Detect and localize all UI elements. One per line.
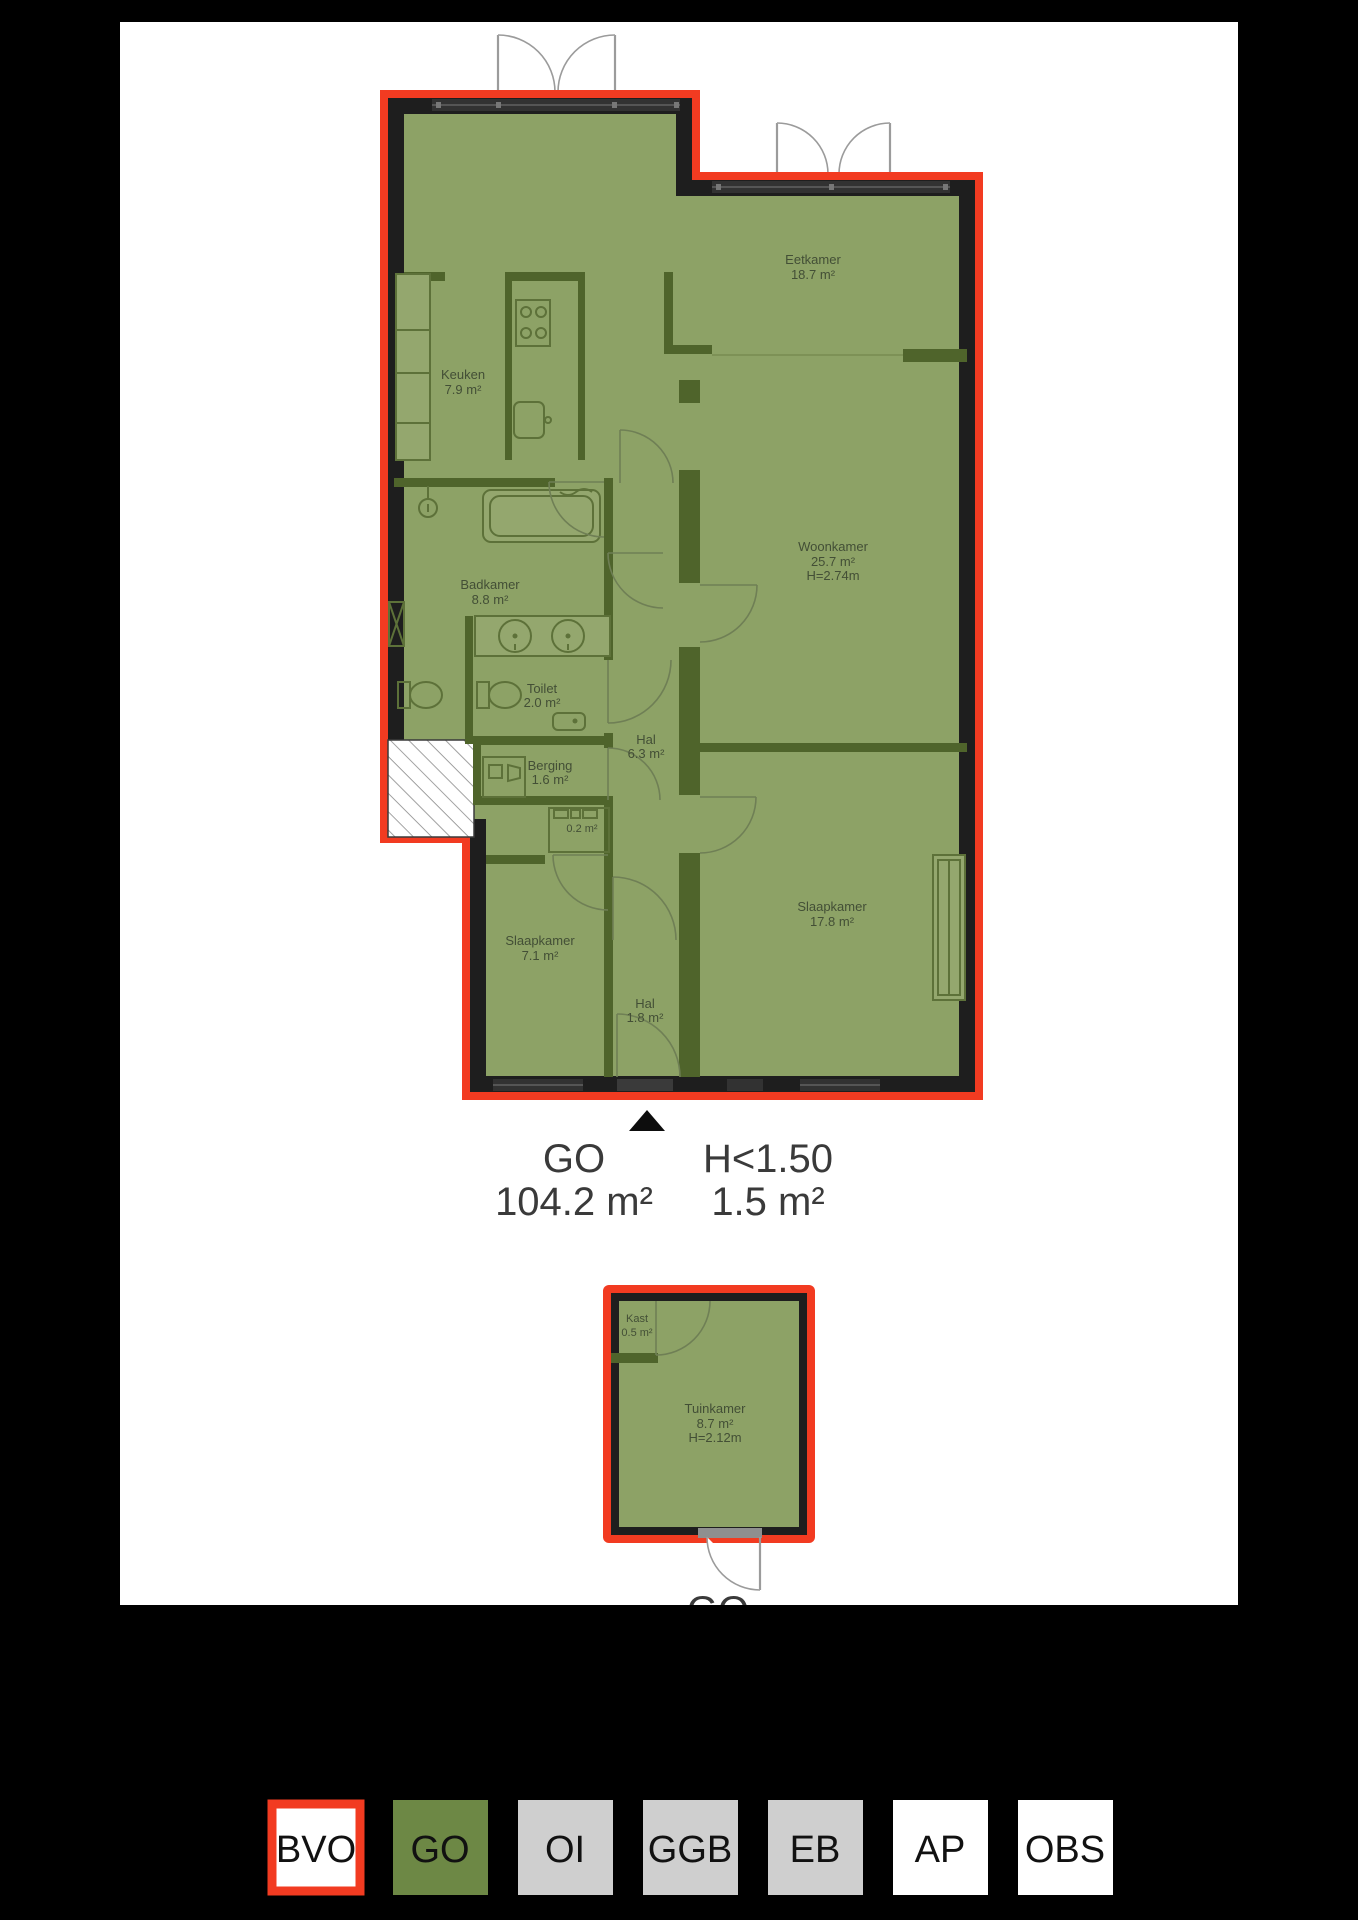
room-label-woonkamer: Woonkamer <box>798 539 869 554</box>
room-area-berging: 1.6 m² <box>532 772 570 787</box>
h150-summary-value: 1.5 m² <box>711 1180 824 1224</box>
room-area-slaapkamer-2: 17.8 m² <box>810 914 855 929</box>
room-area-tuinkamer: 8.7 m² <box>697 1416 735 1431</box>
room-label-toilet: Toilet <box>527 681 558 696</box>
room-label-keuken: Keuken <box>441 367 485 382</box>
room-area-eetkamer: 18.7 m² <box>791 267 836 282</box>
bathtub-icon <box>483 489 600 542</box>
legend-label-go: GO <box>410 1829 469 1871</box>
legend-label-oi: OI <box>545 1829 585 1871</box>
room-label-badkamer: Badkamer <box>460 577 520 592</box>
room-area-keuken: 7.9 m² <box>445 382 483 397</box>
legend-label-obs: OBS <box>1025 1829 1105 1871</box>
room-area-toilet: 2.0 m² <box>524 695 562 710</box>
door-threshold <box>698 1528 762 1538</box>
legend: BVO GO OI GGB EB AP OBS <box>272 1800 1113 1895</box>
room-label-slaapkamer-2: Slaapkamer <box>797 899 867 914</box>
double-basin-icon <box>475 616 610 656</box>
room-area-woonkamer: 25.7 m² <box>811 554 856 569</box>
legend-label-eb: EB <box>790 1829 841 1871</box>
kast-wall <box>611 1353 658 1363</box>
go-summary-label: GO <box>543 1137 605 1181</box>
room-area-slaapkamer-1: 7.1 m² <box>522 948 560 963</box>
go-summary-value: 104.2 m² <box>495 1180 653 1224</box>
room-area-hal-2: 1.8 m² <box>627 1010 665 1025</box>
legend-label-bvo: BVO <box>276 1829 356 1871</box>
wardrobe-icon <box>933 855 965 1000</box>
room-area-hal: 6.3 m² <box>628 746 666 761</box>
floorplan-svg: Keuken 7.9 m² Eetkamer 18.7 m² Woonkamer… <box>0 0 1358 1920</box>
room-label-slaapkamer-1: Slaapkamer <box>505 933 575 948</box>
legend-label-ggb: GGB <box>648 1829 732 1871</box>
legend-label-ap: AP <box>915 1829 966 1871</box>
h150-summary-label: H<1.50 <box>703 1137 833 1181</box>
room-label-tuinkamer: Tuinkamer <box>685 1401 747 1416</box>
h150-hatched-zone <box>388 740 474 837</box>
room-area-kastje: 0.2 m² <box>566 823 598 835</box>
room-area-badkamer: 8.8 m² <box>472 592 510 607</box>
room-label-hal-2: Hal <box>635 996 655 1011</box>
room-label-kast: Kast <box>626 1313 648 1325</box>
room-height-tuinkamer: H=2.12m <box>688 1430 741 1445</box>
room-height-woonkamer: H=2.74m <box>806 568 859 583</box>
room-area-kast: 0.5 m² <box>621 1327 653 1339</box>
room-label-eetkamer: Eetkamer <box>785 252 841 267</box>
floorplan-page: Keuken 7.9 m² Eetkamer 18.7 m² Woonkamer… <box>0 0 1358 1920</box>
room-label-berging: Berging <box>528 758 573 773</box>
main-floor-plan: Keuken 7.9 m² Eetkamer 18.7 m² Woonkamer… <box>380 35 983 1224</box>
room-label-hal: Hal <box>636 732 656 747</box>
